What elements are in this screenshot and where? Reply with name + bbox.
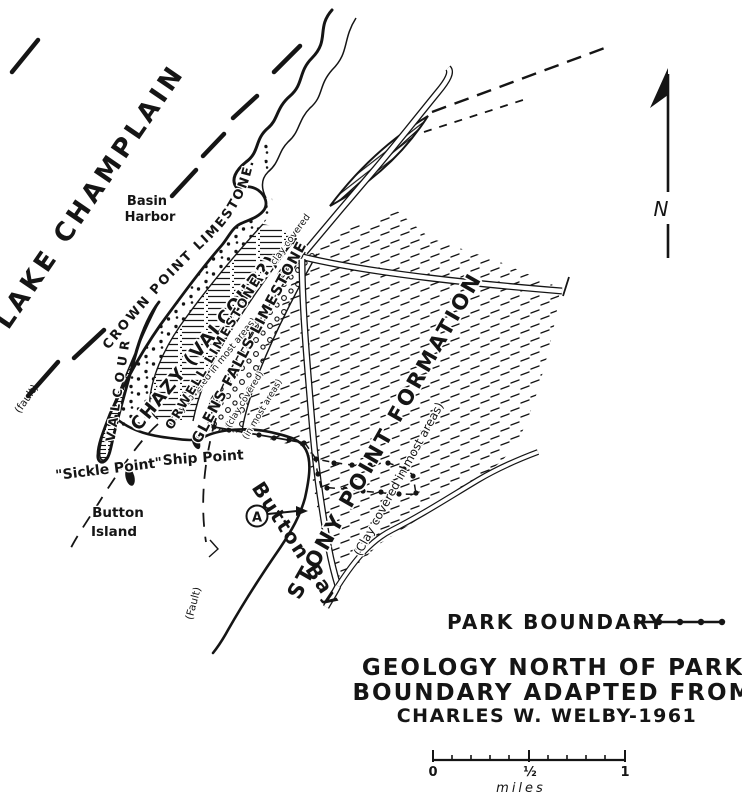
north-arrow-head <box>650 68 668 108</box>
title-line-3: CHARLES W. WELBY-1961 <box>397 705 698 727</box>
scale-zero: 0 <box>428 765 437 780</box>
scale-half: ½ <box>523 765 536 780</box>
scale-unit: miles <box>496 781 546 796</box>
label-button-island-1: Button <box>92 505 144 521</box>
title-line-2: BOUNDARY ADAPTED FROM <box>353 680 742 706</box>
geologic-map: A LAKE CHAMPLAIN CROWN POINT LIMESTONE. … <box>0 0 742 800</box>
label-sickle-point: "Sickle Point" <box>55 455 164 484</box>
title-line-1: GEOLOGY NORTH OF PARK <box>362 655 742 681</box>
label-button-island-2: Island <box>91 524 137 540</box>
scale-one: 1 <box>620 765 629 780</box>
label-basin-harbor-1: Basin <box>127 194 167 209</box>
scale-bar: 0 ½ 1 miles <box>428 750 629 796</box>
north-arrow: N <box>650 68 669 258</box>
geologic-map-page: A LAKE CHAMPLAIN CROWN POINT LIMESTONE. … <box>0 0 742 800</box>
north-label: N <box>654 197 669 221</box>
label-ship-point: Ship Point <box>162 447 244 469</box>
label-basin-harbor-2: Harbor <box>125 210 176 225</box>
label-fault-upper: (fault) <box>12 382 40 415</box>
point-a-label: A <box>252 511 262 526</box>
legend-park-boundary: PARK BOUNDARY <box>447 610 725 634</box>
legend-park-boundary-label: PARK BOUNDARY <box>447 610 665 634</box>
label-fault-lower: (Fault) <box>183 586 203 621</box>
map-title: GEOLOGY NORTH OF PARK BOUNDARY ADAPTED F… <box>353 655 742 727</box>
fault-trace-ne <box>424 46 610 132</box>
